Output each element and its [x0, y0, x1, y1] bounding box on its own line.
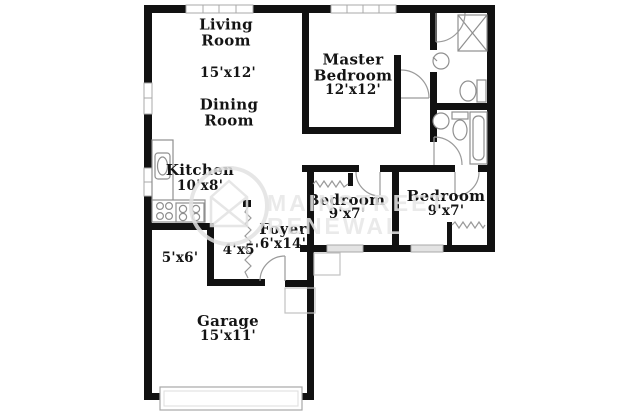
house-in-circle-icon — [191, 168, 267, 244]
watermark-line2: RENEWAL — [267, 213, 403, 240]
floor-plan: Living Room 15'x12' Dining Room Master B… — [0, 0, 640, 415]
